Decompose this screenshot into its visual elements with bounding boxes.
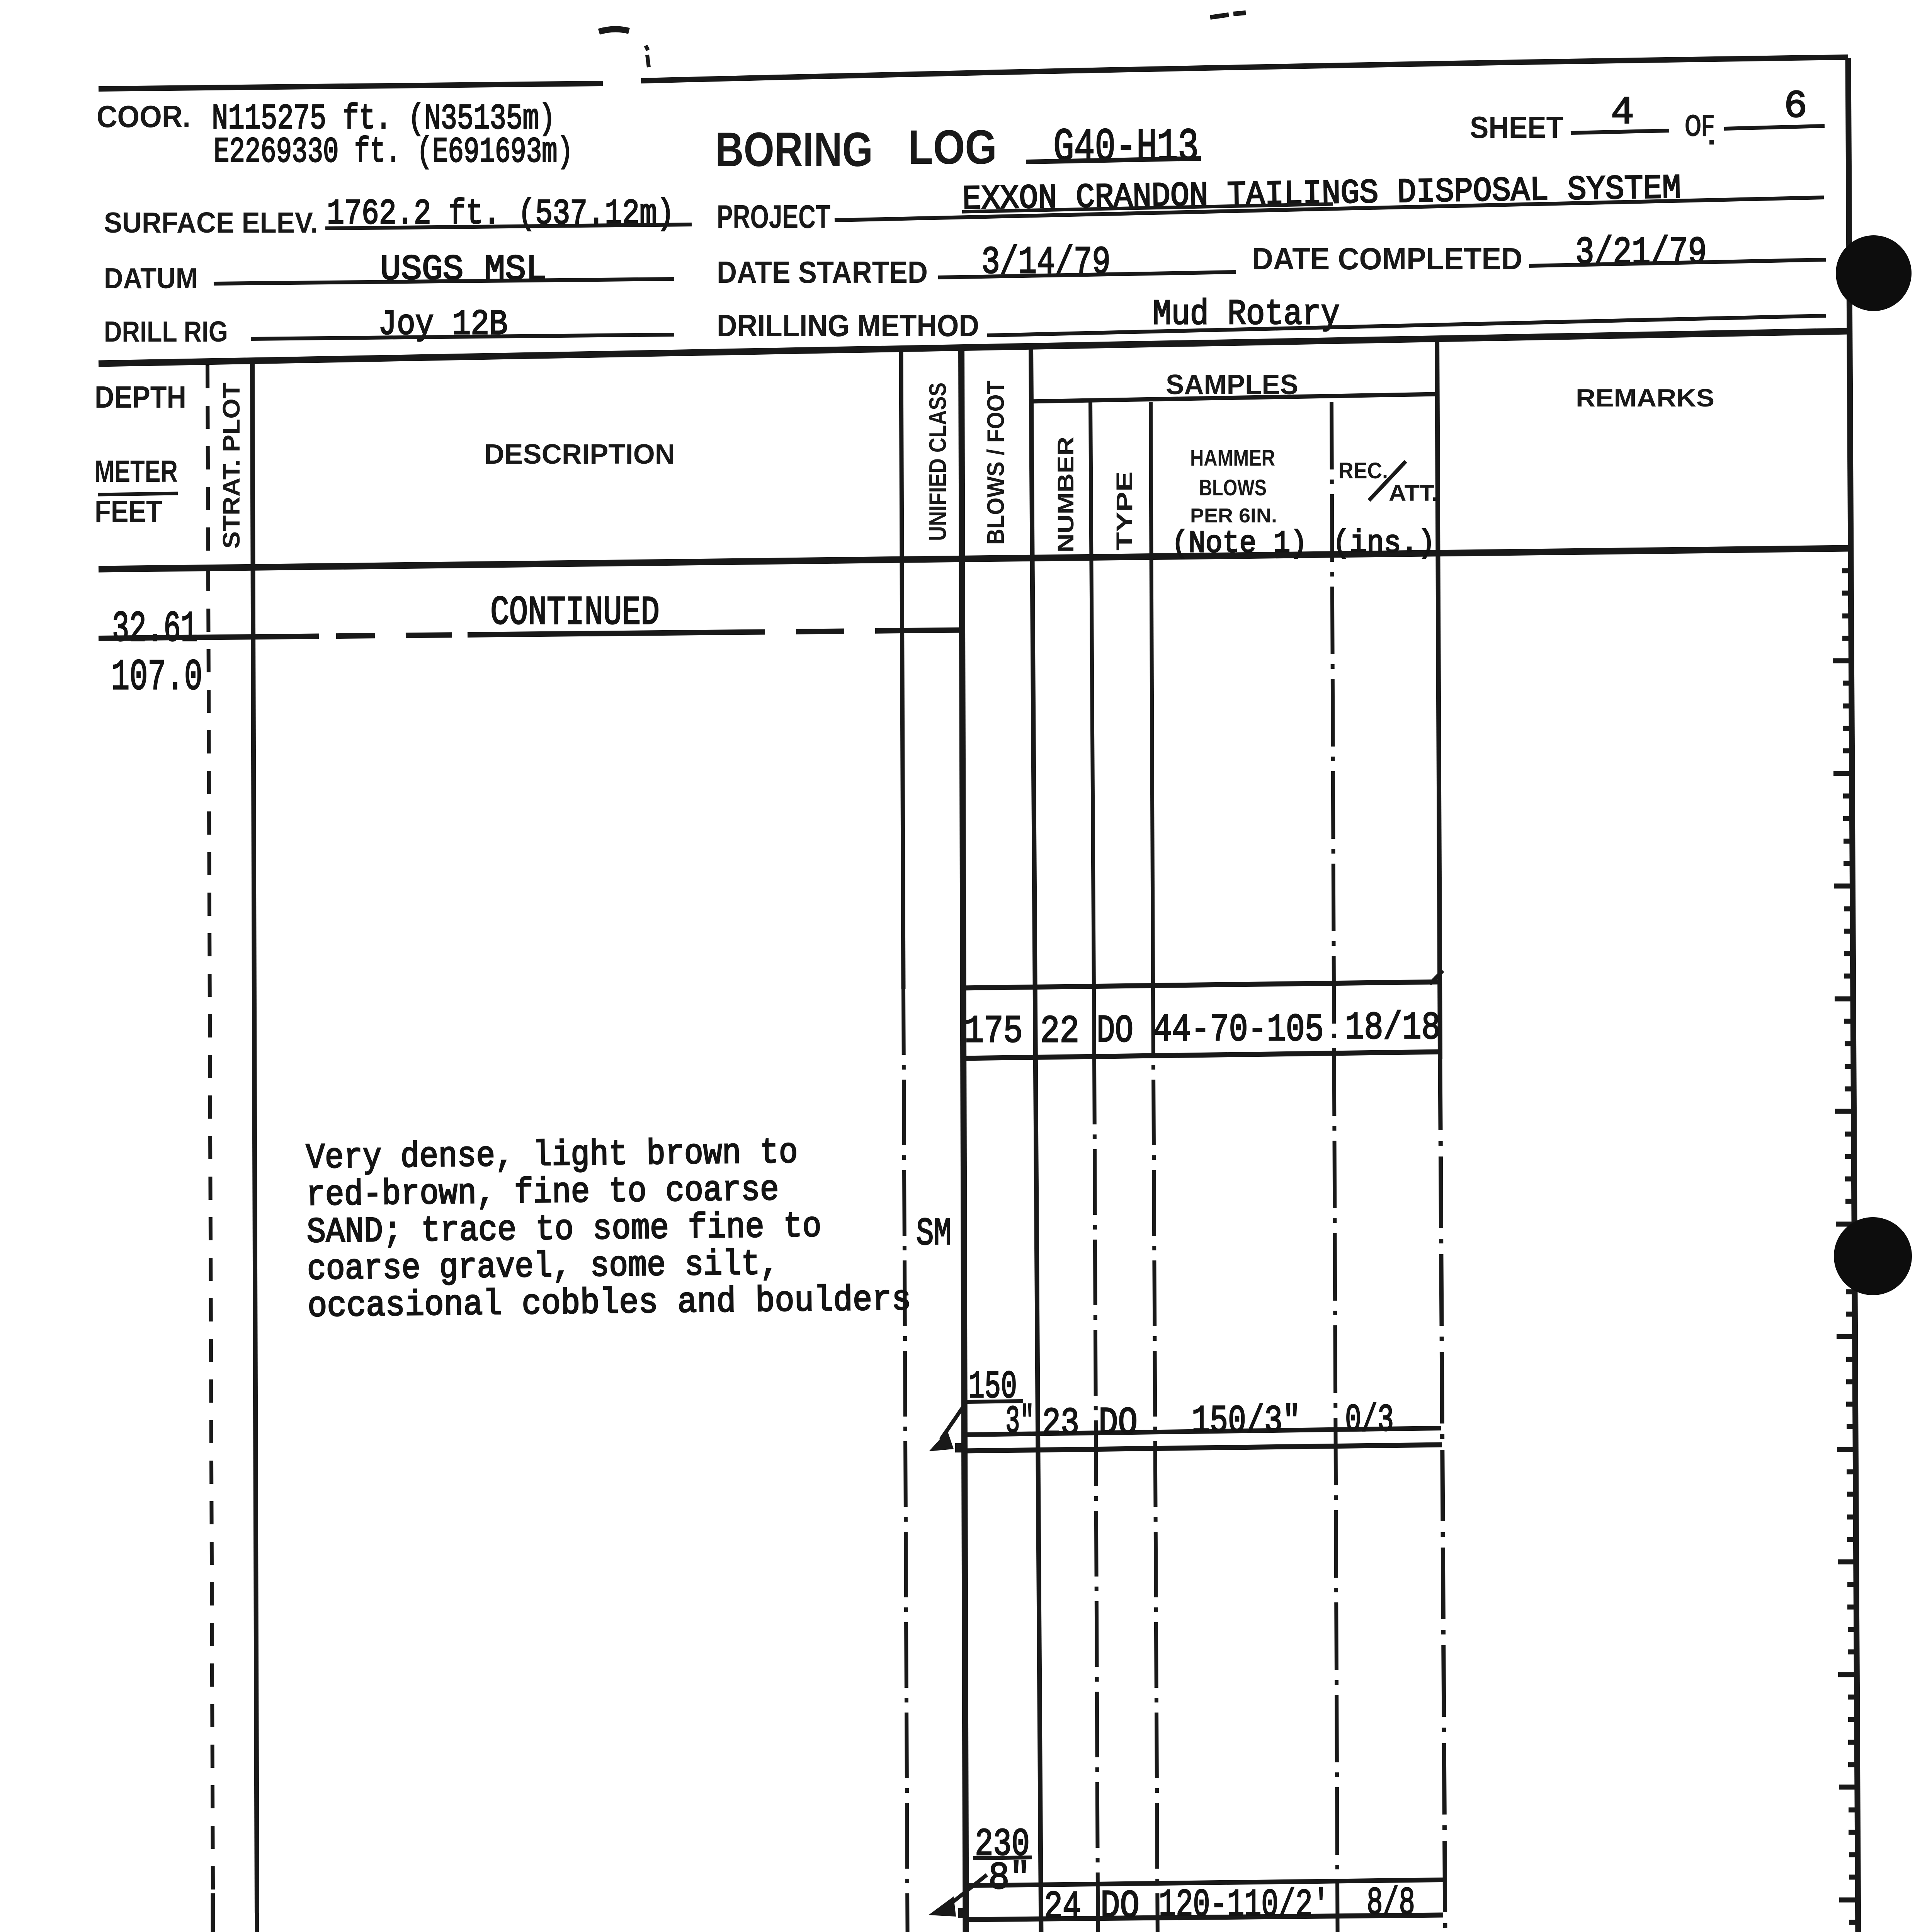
svg-text:SURFACE ELEV.: SURFACE ELEV. bbox=[104, 206, 318, 239]
svg-text:4: 4 bbox=[1611, 91, 1634, 135]
svg-text:(Note 1): (Note 1) bbox=[1172, 526, 1307, 561]
svg-text:DEPTH: DEPTH bbox=[95, 380, 186, 414]
svg-text:3": 3" bbox=[1005, 1400, 1034, 1444]
svg-text:NUMBER: NUMBER bbox=[1053, 437, 1078, 553]
svg-text:LOG: LOG bbox=[908, 121, 997, 174]
svg-text:FEET: FEET bbox=[95, 494, 162, 529]
svg-text:UNIFIED CLASS: UNIFIED CLASS bbox=[925, 383, 951, 541]
svg-text:PROJECT: PROJECT bbox=[717, 199, 830, 235]
svg-text:3/21/79: 3/21/79 bbox=[1575, 231, 1707, 275]
svg-text:USGS MSL: USGS MSL bbox=[380, 249, 547, 290]
svg-text:BLOWS: BLOWS bbox=[1199, 475, 1267, 500]
svg-text:DATUM: DATUM bbox=[104, 262, 198, 294]
svg-text:23: 23 bbox=[1042, 1402, 1079, 1446]
svg-text:STRAT. PLOT: STRAT. PLOT bbox=[218, 383, 245, 549]
svg-text:REMARKS: REMARKS bbox=[1576, 384, 1714, 412]
svg-text:REC.: REC. bbox=[1338, 458, 1388, 483]
svg-text:150/3": 150/3" bbox=[1192, 1400, 1301, 1444]
svg-text:occasional cobbles and boulder: occasional cobbles and boulders bbox=[307, 1279, 911, 1327]
svg-text:0/3: 0/3 bbox=[1345, 1399, 1394, 1442]
svg-text:METER: METER bbox=[95, 454, 178, 488]
svg-text:BLOWS / FOOT: BLOWS / FOOT bbox=[983, 381, 1009, 545]
svg-text:COOR.: COOR. bbox=[97, 99, 190, 134]
svg-text:8": 8" bbox=[988, 1857, 1031, 1900]
svg-text:107.0: 107.0 bbox=[111, 653, 202, 702]
svg-text:DATE COMPLETED: DATE COMPLETED bbox=[1252, 241, 1522, 276]
svg-text:22: 22 bbox=[1040, 1010, 1079, 1054]
svg-text:24: 24 bbox=[1044, 1886, 1081, 1929]
svg-text:SHEET: SHEET bbox=[1470, 110, 1563, 145]
svg-text:BORING: BORING bbox=[715, 123, 873, 177]
svg-text:(ins.): (ins.) bbox=[1333, 526, 1435, 561]
svg-text:DO: DO bbox=[1100, 1885, 1139, 1929]
svg-text:OF: OF bbox=[1685, 108, 1714, 143]
svg-text:SM: SM bbox=[916, 1213, 951, 1256]
svg-text:18/18: 18/18 bbox=[1345, 1007, 1440, 1050]
svg-text:8/8: 8/8 bbox=[1367, 1882, 1415, 1925]
svg-text:6: 6 bbox=[1784, 85, 1807, 129]
svg-text:175: 175 bbox=[964, 1010, 1023, 1054]
svg-text:DO: DO bbox=[1099, 1402, 1138, 1446]
svg-text:ATT.: ATT. bbox=[1389, 481, 1438, 506]
svg-text:CONTINUED: CONTINUED bbox=[490, 590, 660, 636]
svg-text:DESCRIPTION: DESCRIPTION bbox=[484, 439, 675, 470]
svg-text:DRILL RIG: DRILL RIG bbox=[104, 315, 228, 348]
svg-text:E2269330 ft. (E691693m): E2269330 ft. (E691693m) bbox=[214, 132, 573, 172]
svg-text:120-110/2': 120-110/2' bbox=[1159, 1884, 1330, 1927]
svg-text:44-70-105: 44-70-105 bbox=[1153, 1009, 1324, 1052]
svg-text:HAMMER: HAMMER bbox=[1190, 446, 1275, 471]
svg-text:DRILLING METHOD: DRILLING METHOD bbox=[717, 308, 979, 343]
svg-text:TYPE: TYPE bbox=[1112, 471, 1137, 551]
svg-text:G40-H13: G40-H13 bbox=[1053, 122, 1199, 174]
svg-text:DATE STARTED: DATE STARTED bbox=[717, 255, 928, 289]
svg-text:DO: DO bbox=[1097, 1010, 1133, 1053]
svg-text:PER 6IN.: PER 6IN. bbox=[1190, 505, 1277, 527]
svg-text:32.61: 32.61 bbox=[112, 605, 198, 654]
